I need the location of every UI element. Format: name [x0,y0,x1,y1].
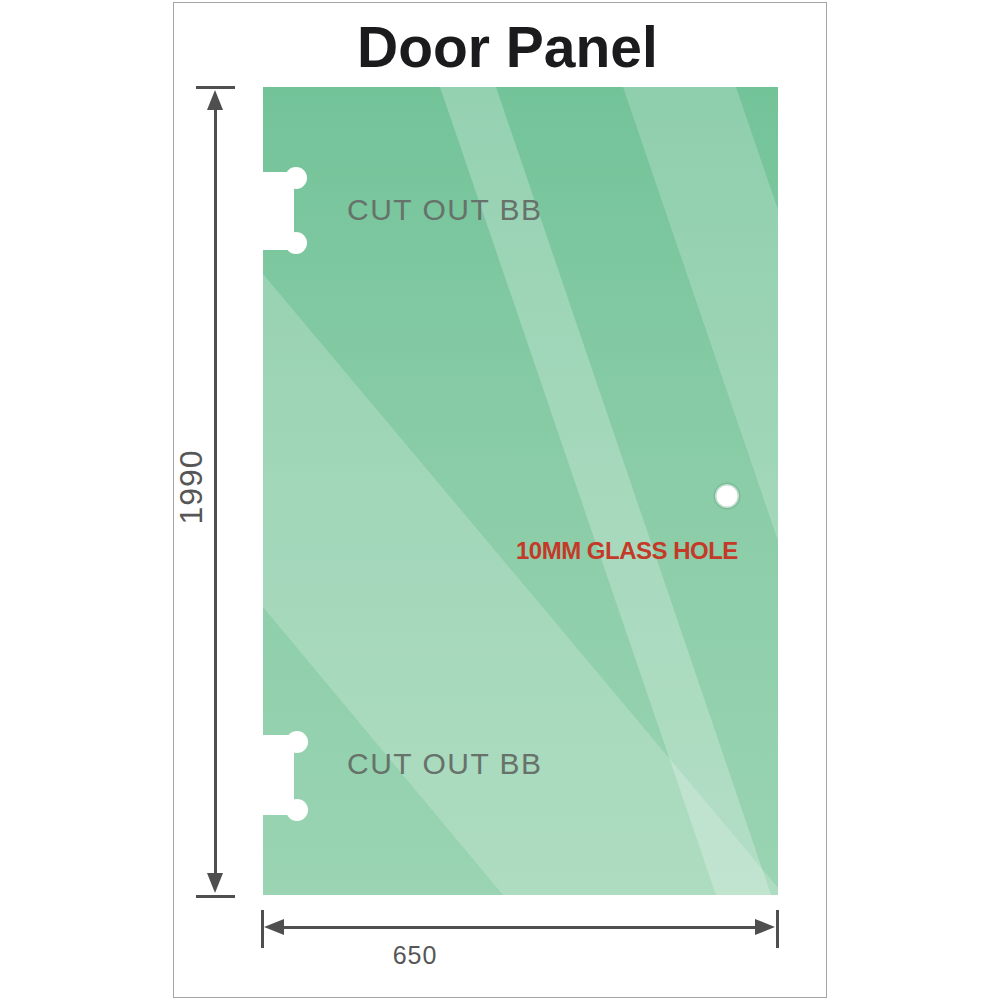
height-dim-value: 1990 [174,427,208,547]
width-dim-right-cap [776,910,779,948]
height-dim-bottom-cap [196,895,235,898]
height-dim-top-cap [196,86,235,89]
cutout-bottom-label: CUT OUT BB [347,747,543,781]
glass-hole [715,484,739,508]
door-panel-diagram: Door Panel CUT OUT BB CUT OU [0,0,1000,1000]
width-dim-line [284,926,755,929]
height-dim-arrow-down-icon [207,873,223,893]
width-dim-arrow-right-icon [755,919,775,935]
width-dim-value: 650 [355,941,475,970]
width-dim-arrow-left-icon [264,919,284,935]
height-dim-arrow-up-icon [207,90,223,110]
glass-hole-label: 10MM GLASS HOLE [516,537,738,565]
page-title: Door Panel [357,14,658,80]
cutout-top-label: CUT OUT BB [347,193,543,227]
height-dim-line [214,108,217,873]
